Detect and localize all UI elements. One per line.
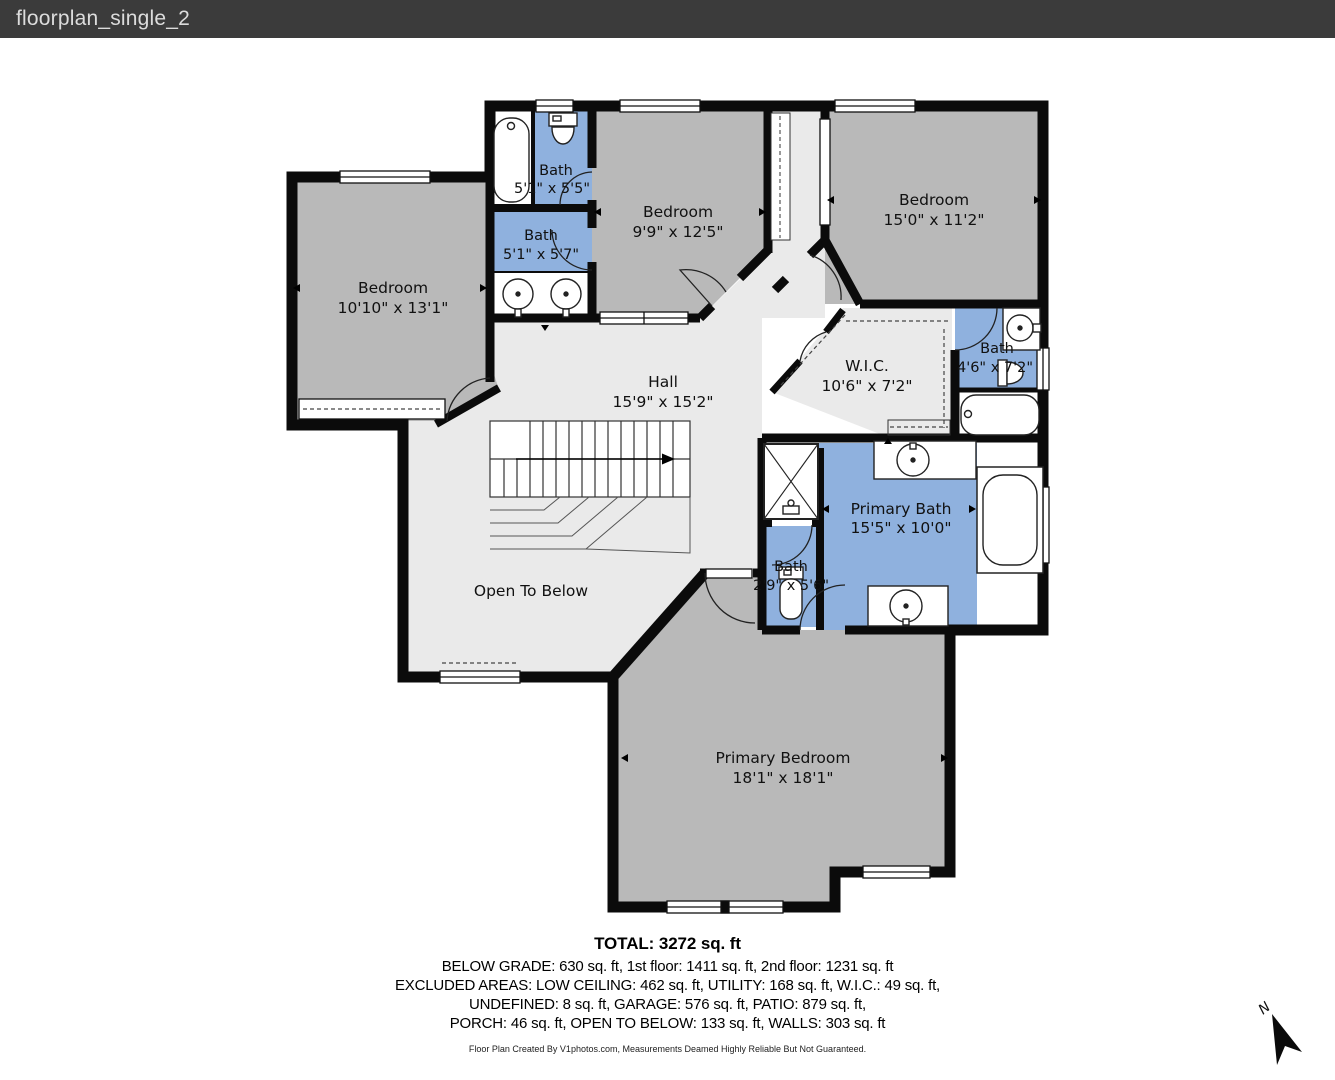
floorplan-viewer: floorplan_single_2 [0, 0, 1335, 1080]
window-openbelow-bottom [440, 671, 520, 683]
label-bath-small-dims: 2'9" x 5'6" [753, 578, 829, 594]
floorplan-drawing: Bedroom 10'10" x 13'1" Bath 5'1" x 5'5" … [0, 0, 1335, 1080]
window-leftbedroom-top [340, 171, 430, 183]
label-hall-name: Hall [648, 373, 678, 391]
primary-bath-vanity-bottom [868, 586, 948, 626]
label-bath-mid-name: Bath [524, 228, 558, 244]
summary-total: TOTAL: 3272 sq. ft [0, 934, 1335, 954]
shower [764, 444, 818, 519]
label-hall-dims: 15'9" x 15'2" [613, 393, 714, 411]
label-bath-right-dims: 4'6" x 7'2" [957, 360, 1033, 376]
area-summary: TOTAL: 3272 sq. ft BELOW GRADE: 630 sq. … [0, 934, 1335, 1054]
label-primary-bedroom-dims: 18'1" x 18'1" [733, 769, 834, 787]
label-left-bedroom-dims: 10'10" x 13'1" [338, 299, 449, 317]
label-bath-right-name: Bath [980, 341, 1014, 357]
label-primary-bath-dims: 15'5" x 10'0" [851, 519, 952, 537]
summary-line-1: BELOW GRADE: 630 sq. ft, 1st floor: 1411… [0, 957, 1335, 976]
summary-line-2: EXCLUDED AREAS: LOW CEILING: 462 sq. ft,… [0, 976, 1335, 995]
label-left-bedroom-name: Bedroom [358, 279, 428, 297]
window-primarybedroom-notch [863, 866, 930, 878]
title-bar: floorplan_single_2 [0, 0, 1335, 38]
label-open-to-below: Open To Below [474, 582, 589, 600]
label-primary-bedroom-name: Primary Bedroom [716, 749, 851, 767]
summary-line-3: UNDEFINED: 8 sq. ft, GARAGE: 576 sq. ft,… [0, 995, 1335, 1014]
window-top-3 [835, 100, 915, 112]
label-bath-top-name: Bath [539, 163, 573, 179]
window-top-1 [536, 100, 573, 112]
label-bath-mid-dims: 5'1" x 5'7" [503, 247, 579, 263]
window-top-2 [620, 100, 700, 112]
bathtub-right [961, 395, 1039, 435]
label-bath-small-name: Bath [774, 559, 808, 575]
label-bedroom-3-name: Bedroom [899, 191, 969, 209]
label-primary-bath-name: Primary Bath [851, 500, 952, 518]
door-panel-primary-bedroom [706, 569, 752, 578]
primary-bath-vanity-top [874, 441, 976, 479]
closet-doors-hall [600, 312, 688, 324]
primary-bathtub [977, 467, 1043, 573]
label-wic-name: W.I.C. [845, 357, 889, 375]
summary-disclaimer: Floor Plan Created By V1photos.com, Meas… [0, 1044, 1335, 1054]
label-bedroom-2-name: Bedroom [643, 203, 713, 221]
label-bedroom-2-dims: 9'9" x 12'5" [632, 223, 723, 241]
label-wic-dims: 10'6" x 7'2" [821, 377, 912, 395]
summary-line-4: PORCH: 46 sq. ft, OPEN TO BELOW: 133 sq.… [0, 1014, 1335, 1033]
label-bedroom-3-dims: 15'0" x 11'2" [884, 211, 985, 229]
closet-panel-bedroom3 [820, 119, 830, 225]
window-primarybedroom-bottom [667, 901, 783, 913]
label-bath-top-dims: 5'1" x 5'5" [514, 181, 590, 197]
window-right-1 [1037, 348, 1049, 390]
page-title: floorplan_single_2 [16, 7, 190, 31]
